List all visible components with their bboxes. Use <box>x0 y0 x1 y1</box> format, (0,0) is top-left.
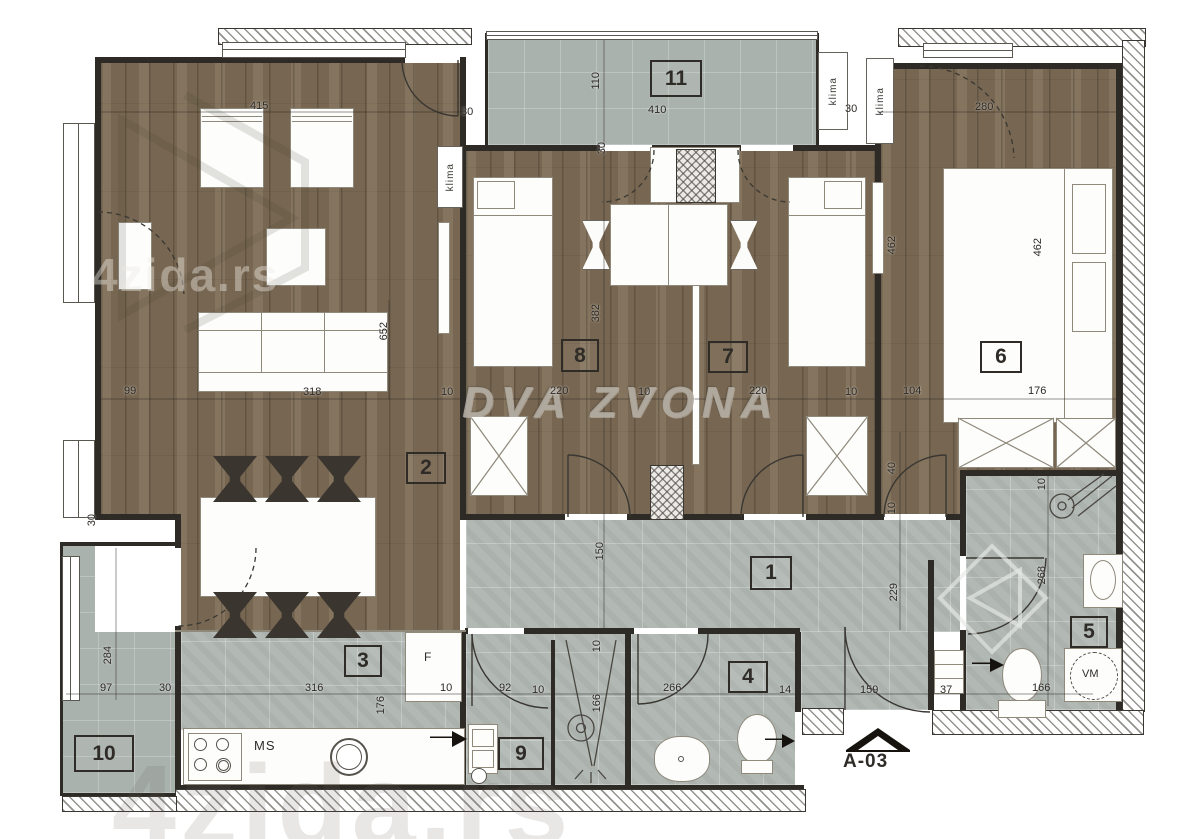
ac-unit: klima <box>437 146 463 208</box>
toilet <box>737 714 777 764</box>
wall <box>62 542 177 546</box>
dimension: 382 <box>590 304 602 322</box>
dimension: 316 <box>305 682 323 694</box>
corner-mask <box>95 520 175 632</box>
dimension: 176 <box>375 696 387 714</box>
dimension: 10 <box>1036 478 1048 490</box>
tv-shelf <box>438 222 450 334</box>
dimension: 229 <box>888 583 900 601</box>
plan-marker: A-03 <box>843 751 888 773</box>
dimension: 97 <box>100 682 112 694</box>
dining-table <box>200 497 376 597</box>
wall <box>625 632 631 787</box>
pillow <box>824 181 862 209</box>
wall <box>960 470 1122 476</box>
dimension: 30 <box>159 682 171 694</box>
room-label-6: 6 <box>980 341 1022 373</box>
wall <box>460 57 466 520</box>
dimension: 415 <box>250 100 268 112</box>
dimension: 166 <box>591 694 603 712</box>
fridge-label: F <box>424 650 431 664</box>
dimension: 10 <box>440 682 452 694</box>
wall <box>875 63 1122 69</box>
armchair <box>200 108 264 188</box>
floor-hallway-room1 <box>466 520 961 632</box>
wardrobe <box>470 416 528 496</box>
dimension: 10 <box>845 386 857 398</box>
room-label-5: 5 <box>1070 616 1108 648</box>
dimension: 176 <box>1028 385 1046 397</box>
dimension: 104 <box>903 385 921 397</box>
room-label-2: 2 <box>406 452 446 484</box>
toilet-tank <box>998 700 1046 718</box>
exterior-wall-hatch <box>1122 40 1145 712</box>
window <box>923 43 1013 58</box>
dimension: 318 <box>303 386 321 398</box>
dimension: 462 <box>886 236 898 254</box>
dimension: 462 <box>1032 238 1044 256</box>
dimension: 10 <box>638 386 650 398</box>
wall <box>95 514 181 520</box>
toilet-tank <box>741 760 773 774</box>
desk-pair <box>610 204 728 286</box>
dimension: 652 <box>378 322 390 340</box>
dimension: 280 <box>975 101 993 113</box>
dimension: 37 <box>940 684 952 696</box>
dimension: 220 <box>749 385 767 397</box>
room-label-1: 1 <box>750 556 792 590</box>
dimension: 30 <box>86 514 98 526</box>
vm-label: VM <box>1082 668 1099 680</box>
wardrobe <box>958 418 1054 468</box>
wardrobe <box>1056 418 1116 468</box>
pillow <box>1072 262 1106 332</box>
window <box>63 440 95 518</box>
room-label-4: 4 <box>728 661 768 693</box>
brand-watermark-large: 4zida.rs <box>112 740 572 839</box>
room-label-7: 7 <box>708 341 748 373</box>
window <box>63 123 95 303</box>
dimension: 268 <box>1036 566 1048 584</box>
ac-unit: klima <box>818 52 848 130</box>
dimension: 10 <box>532 684 544 696</box>
dimension: 220 <box>550 385 568 397</box>
dimension: 92 <box>499 682 511 694</box>
room-label-11: 11 <box>650 60 702 97</box>
dimension: 159 <box>860 684 878 696</box>
room-label-3: 3 <box>344 645 382 677</box>
floor-vestibule <box>801 632 928 710</box>
wardrobe <box>806 416 868 496</box>
ac-unit: klima <box>866 58 894 144</box>
pillow <box>477 181 515 209</box>
dimension: 410 <box>648 104 666 116</box>
dimension: 10 <box>886 502 898 514</box>
fridge <box>405 632 462 702</box>
dimension: 10 <box>591 640 603 652</box>
dimension: 110 <box>590 72 602 90</box>
dimension: 166 <box>1032 682 1050 694</box>
klima-label: klima <box>875 87 886 115</box>
wall <box>485 33 488 147</box>
dimension: 40 <box>886 462 898 474</box>
wall <box>795 632 801 712</box>
dimension: 30 <box>845 103 857 115</box>
exterior-wall-hatch <box>802 708 844 735</box>
brand-watermark: 4zida.rs <box>92 248 279 302</box>
dimension: 14 <box>779 684 791 696</box>
shaft-column <box>676 149 716 203</box>
klima-label: klima <box>445 163 456 191</box>
shelf <box>872 182 884 274</box>
pillow <box>1072 184 1106 254</box>
armchair <box>290 108 354 188</box>
floor-plan: VM klima klima klima <box>0 0 1200 839</box>
balcony-railing <box>486 31 818 40</box>
dimension: 10 <box>441 386 453 398</box>
room-label-8: 8 <box>561 339 599 372</box>
wall <box>960 470 966 558</box>
dimension: 266 <box>663 682 681 694</box>
window <box>222 42 406 58</box>
sofa <box>198 312 388 392</box>
dimension: 30 <box>596 142 608 154</box>
window <box>62 556 80 701</box>
dimension: 99 <box>124 385 136 397</box>
shaft-column <box>650 465 684 520</box>
dimension: 150 <box>594 542 606 560</box>
dimension: 284 <box>102 646 114 664</box>
dimension: 30 <box>461 106 473 118</box>
klima-label: klima <box>828 77 839 105</box>
agency-watermark: DVA ZVONA <box>462 378 779 428</box>
